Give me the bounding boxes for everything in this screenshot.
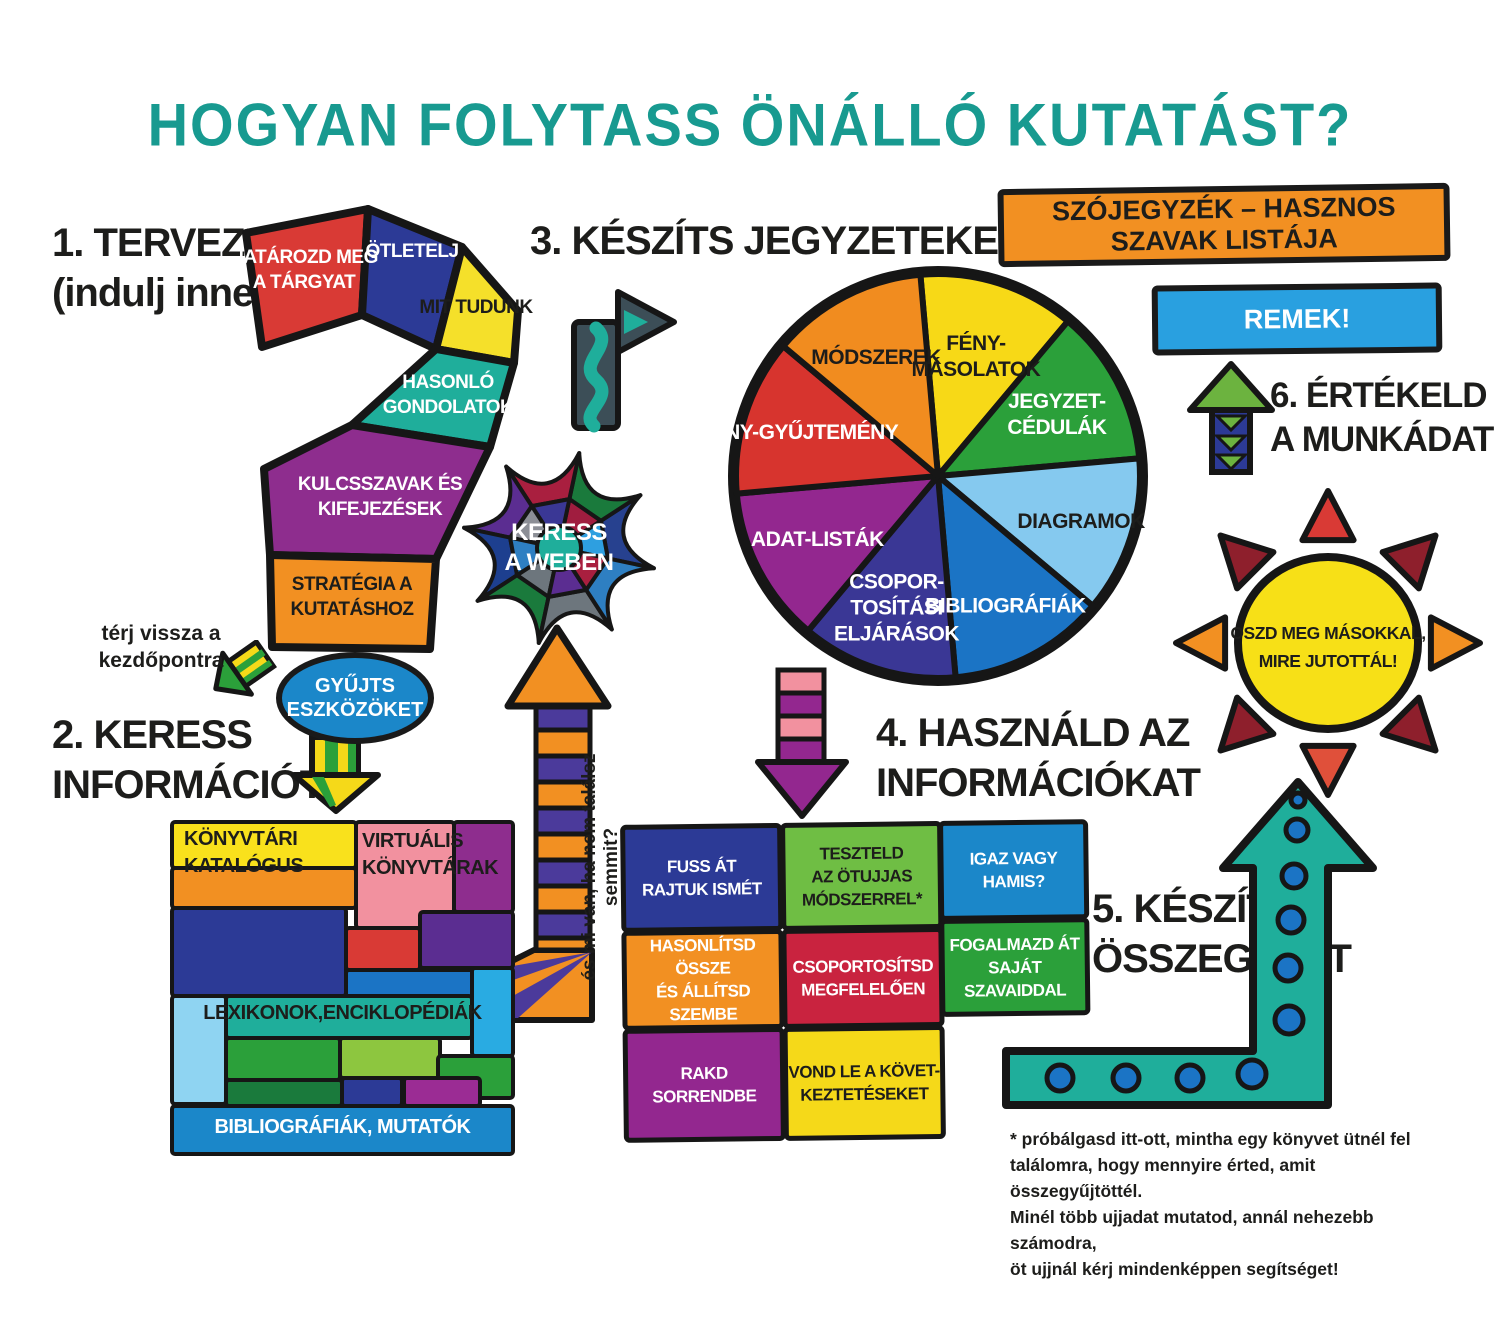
sun-label: OSZD MEG MÁSOKKAL, xyxy=(1230,622,1425,643)
wall-label: VIRTUÁLISKÖNYVTÁRAK xyxy=(362,828,512,882)
note-types-pie-chart: FÉNY-MÁSOLATOKJEGYZET-CÉDULÁKDIAGRAMOKBI… xyxy=(718,258,1158,694)
web-label: A WEBEN xyxy=(505,549,614,576)
step-6-line1: 6. ÉRTÉKELD xyxy=(1270,374,1493,418)
collect-tools-bubble: GYŰJTS ESZKÖZÖKET xyxy=(276,652,434,744)
qmark-segment-label: STRATÉGIA A xyxy=(292,573,413,595)
wall-brick xyxy=(170,906,348,998)
pie-slice-label: CÉDULÁK xyxy=(1007,416,1106,439)
pink-down-arrow-icon xyxy=(752,666,852,822)
sun-ray xyxy=(1431,617,1480,668)
pie-slice-label: MÓDSZEREK xyxy=(811,345,941,369)
down-arrow-icon xyxy=(290,735,382,815)
wall-label: LEXIKONOK,ENCIKLOPÉDIÁK xyxy=(170,1000,515,1027)
grid-cell: FOGALMAZD ÁTSAJÁT SZAVAIDDAL xyxy=(939,917,1090,1017)
collect-tools-line1: GYŰJTS xyxy=(315,674,395,698)
pie-slice-label: FÉNY- xyxy=(946,332,1006,355)
collect-tools-line2: ESZKÖZÖKET xyxy=(287,698,424,722)
grid-cell: RAKD SORRENDBE xyxy=(623,1027,786,1143)
sun-ray xyxy=(1176,617,1225,668)
grid-cell: HASONLÍTSD ÖSSZEÉS ÁLLÍTSD SZEMBE xyxy=(621,929,784,1031)
information-sources-wall: KÖNYVTÁRIKATALÓGUSVIRTUÁLISKÖNYVTÁRAKLEX… xyxy=(170,820,515,1156)
web-label: KERESS xyxy=(511,519,607,546)
evaluate-up-arrow-icon xyxy=(1186,360,1278,478)
qmark-segment-label: KIFEJEZÉSEK xyxy=(318,498,443,520)
pie-slice-label: DIAGRAMOK xyxy=(1017,510,1145,533)
summary-arrow-dot xyxy=(1275,955,1301,981)
summary-arrow-dot xyxy=(1113,1065,1139,1091)
page-title: HOGYAN FOLYTASS ÖNÁLLÓ KUTATÁST? xyxy=(40,89,1460,159)
step-6-line2: A MUNKÁDAT xyxy=(1270,418,1493,462)
summary-arrow-dot xyxy=(1291,793,1305,807)
share-results-sun: OSZD MEG MÁSOKKAL,MIRE JUTOTTÁL! xyxy=(1148,478,1500,813)
sun-ray xyxy=(1302,491,1353,540)
sun-label: MIRE JUTOTTÁL! xyxy=(1259,650,1398,671)
summary-arrow-dot xyxy=(1275,1006,1303,1034)
glossary-banner-label: SZÓJEGYZÉK – HASZNOS SZAVAK LISTÁJA xyxy=(1004,191,1445,259)
step-2-line2: INFORMÁCIÓT xyxy=(52,760,323,810)
qmark-segment-label: A TÁRGYAT xyxy=(253,271,356,293)
use-information-grid: FUSS ÁTRAJTUK ISMÉTTESZTELDAZ ÖTUJJASMÓD… xyxy=(620,819,1094,1145)
wall-label: BIBLIOGRÁFIÁK, MUTATÓK xyxy=(170,1114,515,1141)
pie-slice-label: TOSÍTÁSI xyxy=(850,597,942,620)
five-finger-footnote: * próbálgasd itt-ott, mintha egy könyvet… xyxy=(1010,1126,1430,1282)
grid-cell: VOND LE A KÖVET-KEZTETÉSEKET xyxy=(783,1025,946,1141)
grid-cell: IGAZ VAGY HAMIS? xyxy=(938,819,1089,921)
summary-arrow-dot xyxy=(1282,864,1306,888)
wall-brick xyxy=(338,1036,442,1080)
pie-slice-label: CSOPOR- xyxy=(849,571,944,594)
turn-right-arrow-icon xyxy=(560,288,695,436)
pie-slice-label: BIBLIOGRÁFIÁK xyxy=(925,595,1086,618)
qmark-segment-label: HATÁROZD MEG xyxy=(240,246,378,268)
qmark-segment-label: ÖTLETELJ xyxy=(365,241,458,262)
no-results-vertical-note: és mi van, ha nem találsz semmit? xyxy=(579,736,623,998)
pie-slice-label: JEGYZET- xyxy=(1008,390,1106,413)
grid-cell: FUSS ÁTRAJTUK ISMÉT xyxy=(620,823,783,933)
great-banner: REMEK! xyxy=(1152,282,1443,355)
wall-brick xyxy=(418,910,515,970)
infographic-canvas: HOGYAN FOLYTASS ÖNÁLLÓ KUTATÁST? 1. TERV… xyxy=(0,0,1500,1322)
return-note-line1: térj vissza a xyxy=(96,620,226,647)
qmark-segment-label: MIT TUDUNK xyxy=(419,297,533,318)
grid-cell: TESZTELDAZ ÖTUJJASMÓDSZERREL* xyxy=(780,821,943,931)
qmark-segment-label: HASONLÓ xyxy=(402,371,494,393)
summary-arrow-dot xyxy=(1278,907,1304,933)
pie-slice-label: ADAT-LISTÁK xyxy=(751,528,884,551)
return-note-line2: kezdőpontra xyxy=(96,647,226,674)
qmark-segment-label: GONDOLATOK xyxy=(383,397,514,418)
pie-slice-label: TÉNY-GYŰJTEMÉNY xyxy=(718,421,899,444)
summary-arrow-dot xyxy=(1238,1060,1266,1088)
great-banner-label: REMEK! xyxy=(1244,303,1351,335)
summary-arrow-dot xyxy=(1177,1065,1203,1091)
summary-arrow-dot xyxy=(1286,819,1308,841)
return-note: térj vissza a kezdőpontra xyxy=(96,620,226,674)
qmark-segment-label: KUTATÁSHOZ xyxy=(290,598,414,620)
wall-label: KÖNYVTÁRIKATALÓGUS xyxy=(184,826,354,880)
qmark-segment-label: KULCSSZAVAK ÉS xyxy=(298,473,462,495)
grid-cell: CSOPORTOSÍTSDMEGFELELŐEN xyxy=(781,927,944,1029)
step-2-heading: 2. KERESS INFORMÁCIÓT xyxy=(52,710,323,810)
wall-brick xyxy=(224,1036,342,1082)
pie-slice-label: ELJÁRÁSOK xyxy=(834,623,959,646)
wall-brick xyxy=(344,926,422,972)
glossary-banner: SZÓJEGYZÉK – HASZNOS SZAVAK LISTÁJA xyxy=(997,183,1450,267)
step-6-heading: 6. ÉRTÉKELD A MUNKÁDAT xyxy=(1270,374,1493,462)
